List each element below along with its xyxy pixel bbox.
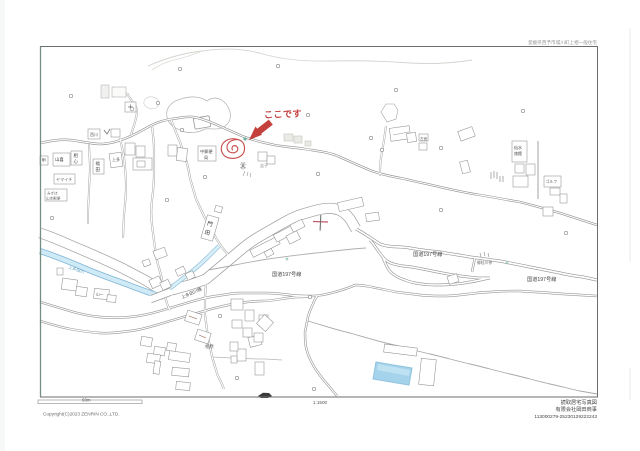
svg-text:1:1500: 1:1500 xyxy=(313,400,327,405)
svg-text:113000279-25230129222243: 113000279-25230129222243 xyxy=(534,414,597,420)
svg-text:ゴルフ: ゴルフ xyxy=(546,179,558,184)
svg-text:Copyright(C)2023 ZENRIN CO.,LT: Copyright(C)2023 ZENRIN CO.,LTD. xyxy=(43,412,120,417)
svg-text:国道197号線: 国道197号線 xyxy=(527,275,556,283)
svg-text:相原: 相原 xyxy=(205,343,214,350)
svg-text:郷桂川停: 郷桂川停 xyxy=(477,260,492,265)
svg-text:ここです: ここです xyxy=(264,109,302,120)
svg-text:山喜: 山喜 xyxy=(55,156,64,163)
svg-text:心: 心 xyxy=(74,158,79,164)
svg-text:国道197号線: 国道197号線 xyxy=(413,250,442,258)
svg-text:相: 相 xyxy=(74,152,79,159)
svg-text:読取居宅写真図: 読取居宅写真図 xyxy=(561,398,597,406)
svg-text:西川: 西川 xyxy=(90,132,98,137)
svg-text:有限会社岡田商事: 有限会社岡田商事 xyxy=(555,405,597,413)
svg-text:中郵便: 中郵便 xyxy=(200,148,213,155)
svg-text:旅館: 旅館 xyxy=(514,150,522,156)
svg-text:愛媛県西予市城川町上相一般住宅: 愛媛県西予市城川町上相一般住宅 xyxy=(528,39,597,46)
svg-text:吉子: 吉子 xyxy=(260,162,268,168)
svg-text:山一: 山一 xyxy=(96,292,104,298)
svg-text:90m: 90m xyxy=(82,398,91,403)
svg-text:国道197号線: 国道197号線 xyxy=(272,270,301,278)
svg-text:ヤマイチ: ヤマイチ xyxy=(56,177,72,182)
svg-text:左官: 左官 xyxy=(420,136,428,141)
svg-text:仙水: 仙水 xyxy=(514,144,522,150)
svg-text:上多: 上多 xyxy=(112,156,120,162)
svg-text:山本郵便: 山本郵便 xyxy=(46,196,61,201)
svg-text:みずほ: みずほ xyxy=(47,191,58,196)
svg-text:福: 福 xyxy=(96,160,101,167)
